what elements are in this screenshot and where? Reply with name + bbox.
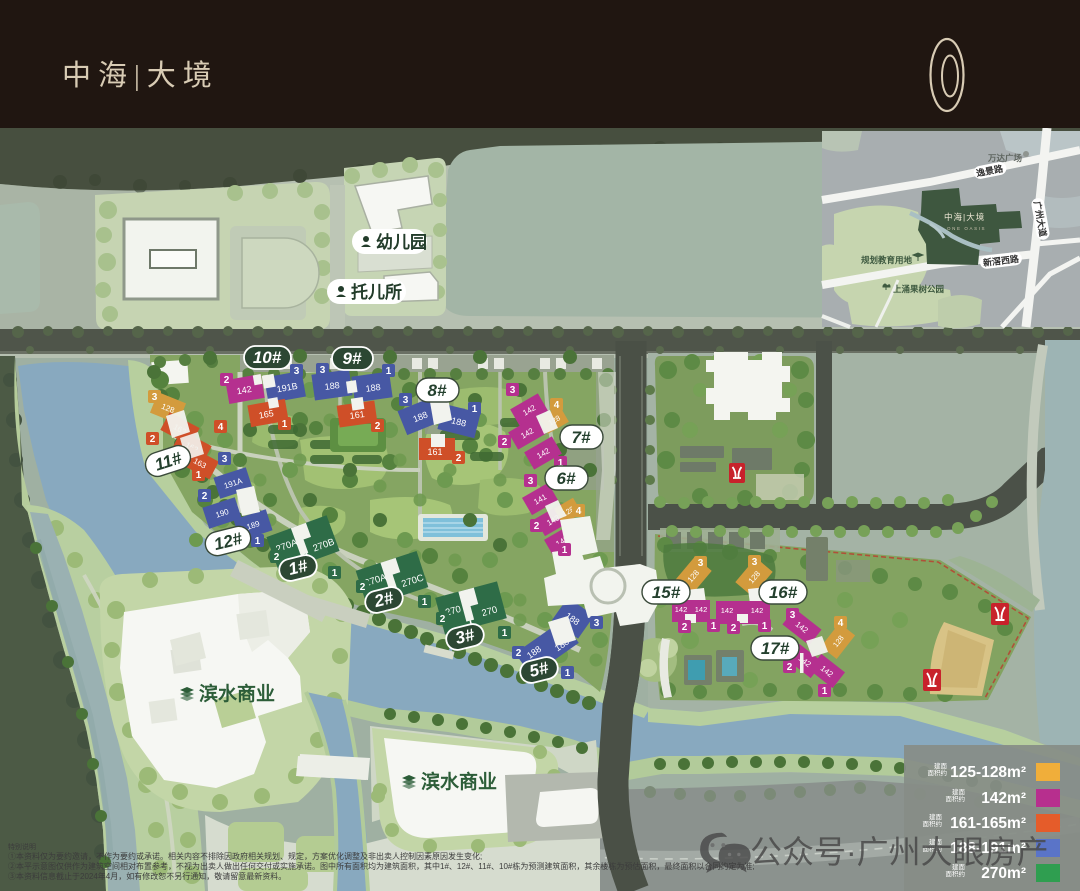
svg-text:7#: 7# (572, 428, 591, 447)
svg-text:161-165m²: 161-165m² (950, 815, 1026, 832)
svg-text:中海|大境: 中海|大境 (944, 212, 985, 222)
svg-text:142m²: 142m² (981, 790, 1026, 807)
svg-text:2: 2 (516, 648, 522, 659)
svg-text:2: 2 (502, 437, 508, 448)
svg-text:2: 2 (456, 453, 462, 464)
svg-text:1: 1 (472, 404, 478, 415)
svg-text:③本资料信息截止于2024年4月，如有修改恕不另行通知，敬请: ③本资料信息截止于2024年4月，如有修改恕不另行通知，敬请留意最新资料。 (8, 871, 286, 881)
svg-text:2: 2 (440, 614, 446, 625)
svg-text:3: 3 (698, 558, 704, 569)
svg-text:3: 3 (752, 557, 758, 568)
svg-text:特别说明: 特别说明 (8, 842, 36, 851)
svg-text:1: 1 (565, 668, 571, 679)
svg-text:托儿所: 托儿所 (351, 282, 402, 302)
svg-text:1: 1 (502, 628, 508, 639)
svg-text:9#: 9# (343, 349, 362, 368)
svg-text:1: 1 (762, 621, 768, 632)
svg-text:建面: 建面 (952, 787, 966, 796)
svg-text:幼儿园: 幼儿园 (376, 232, 427, 252)
svg-text:1: 1 (711, 621, 717, 632)
svg-text:2: 2 (274, 552, 280, 563)
svg-text:6#: 6# (557, 469, 576, 488)
svg-text:2: 2 (202, 491, 208, 502)
svg-text:3: 3 (594, 618, 600, 629)
svg-text:10#: 10# (253, 348, 282, 367)
svg-text:2: 2 (224, 375, 230, 386)
svg-text:161: 161 (427, 447, 442, 457)
svg-text:1: 1 (822, 686, 828, 697)
svg-text:125-128m²: 125-128m² (950, 764, 1026, 781)
svg-text:1: 1 (332, 568, 338, 579)
svg-text:1: 1 (282, 419, 288, 430)
svg-text:2: 2 (375, 421, 381, 432)
svg-text:中海|大境: 中海|大境 (62, 59, 219, 92)
svg-text:1: 1 (386, 366, 392, 377)
svg-text:3: 3 (790, 610, 796, 621)
svg-text:上涌果树公园: 上涌果树公园 (893, 284, 944, 294)
svg-text:3: 3 (222, 454, 228, 465)
svg-text:万达广场: 万达广场 (987, 153, 1023, 163)
svg-text:2: 2 (360, 582, 366, 593)
svg-text:面积约: 面积约 (946, 794, 966, 803)
svg-text:1: 1 (422, 597, 428, 608)
svg-text:1: 1 (255, 536, 261, 547)
svg-text:3: 3 (320, 365, 326, 376)
svg-text:2: 2 (682, 622, 688, 633)
svg-text:16#: 16# (769, 583, 798, 602)
svg-text:建面: 建面 (934, 761, 948, 770)
svg-text:面积约: 面积约 (923, 819, 943, 828)
svg-text:188: 188 (365, 382, 381, 394)
svg-text:①本资料仅为要约邀请，不作为要约或承诺。相关内容不排除因政府: ①本资料仅为要约邀请，不作为要约或承诺。相关内容不排除因政府相关规划、规定，方案… (8, 851, 482, 861)
svg-text:ONE OASIS: ONE OASIS (947, 226, 986, 231)
svg-text:1: 1 (196, 470, 202, 481)
svg-text:面积约: 面积约 (946, 869, 966, 878)
svg-text:滨水商业: 滨水商业 (421, 770, 497, 793)
svg-text:公众号·广州大眼房产: 公众号·广州大眼房产 (750, 834, 1049, 870)
svg-text:15#: 15# (652, 583, 681, 602)
svg-text:规划教育用地: 规划教育用地 (861, 255, 913, 265)
svg-text:8#: 8# (428, 381, 447, 400)
svg-text:3: 3 (528, 476, 534, 487)
svg-text:3: 3 (294, 366, 300, 377)
svg-text:142: 142 (675, 605, 688, 614)
svg-text:3: 3 (152, 392, 158, 403)
svg-text:3: 3 (510, 385, 516, 396)
svg-text:4: 4 (554, 400, 560, 411)
svg-text:142: 142 (695, 605, 708, 614)
svg-text:4: 4 (576, 506, 582, 517)
svg-text:2: 2 (534, 521, 540, 532)
svg-text:142: 142 (721, 606, 734, 615)
svg-text:4: 4 (838, 618, 844, 629)
svg-text:2: 2 (150, 434, 156, 445)
svg-text:161: 161 (349, 409, 365, 421)
svg-text:188: 188 (324, 380, 340, 392)
svg-text:1: 1 (562, 545, 568, 556)
svg-text:2: 2 (731, 623, 737, 634)
svg-text:4: 4 (218, 422, 224, 433)
svg-text:3: 3 (403, 395, 409, 406)
svg-text:2: 2 (787, 662, 793, 673)
svg-text:142: 142 (751, 606, 764, 615)
svg-text:面积约: 面积约 (928, 768, 948, 777)
svg-text:②本平示意图仅供作为建筑空间相对布置参考，不视为出卖人做出任: ②本平示意图仅供作为建筑空间相对布置参考，不视为出卖人做出任何交付或实施承诺。图… (8, 861, 755, 871)
svg-text:17#: 17# (761, 639, 790, 658)
svg-text:滨水商业: 滨水商业 (199, 682, 275, 705)
svg-text:建面: 建面 (929, 812, 943, 821)
